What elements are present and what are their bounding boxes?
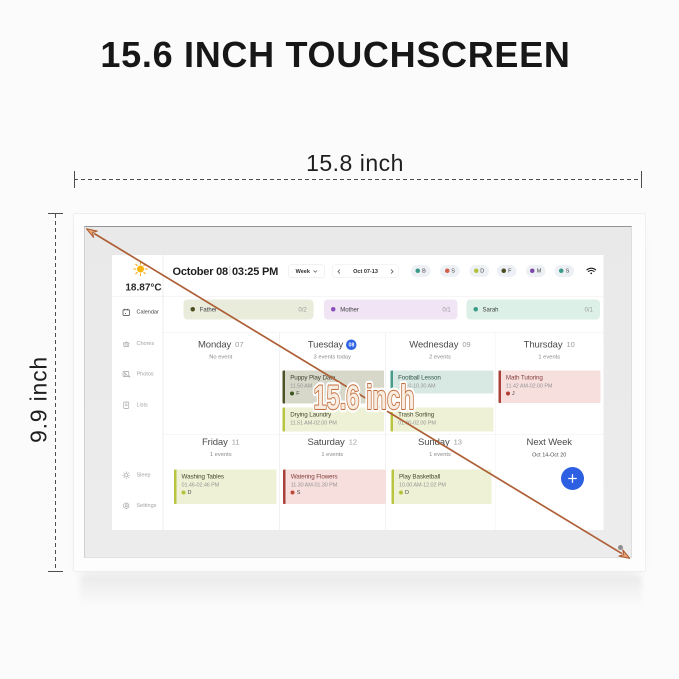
svg-text:15.6 inch: 15.6 inch: [314, 379, 415, 417]
